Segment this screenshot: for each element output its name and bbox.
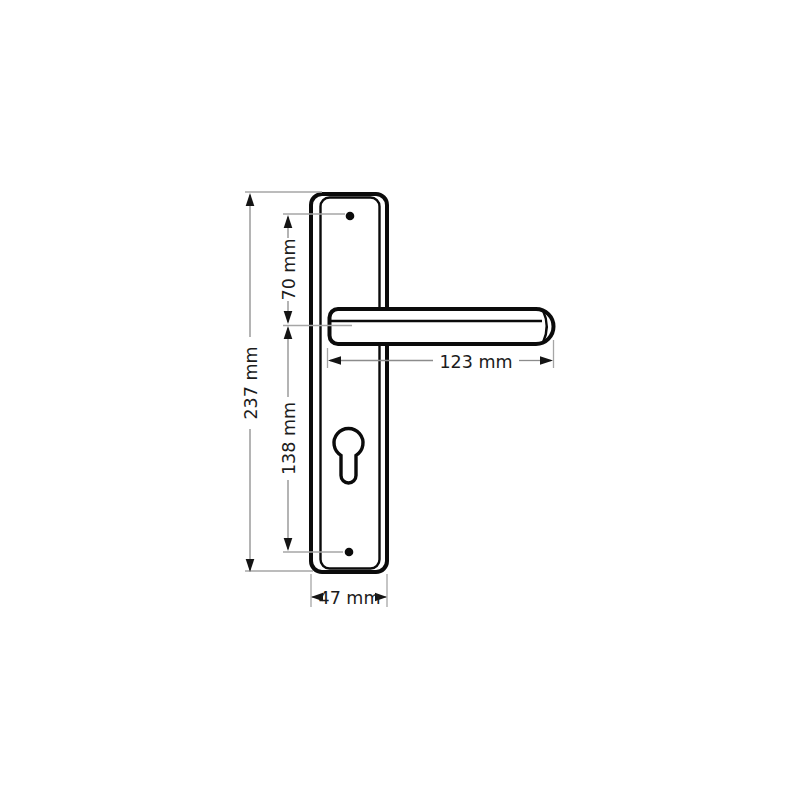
dimension-label-handle-length: 123 mm [439, 352, 512, 372]
arrow-down-icon [284, 311, 293, 324]
arrow-up-icon [284, 215, 293, 228]
dimension-plate-width: 47 mm [311, 574, 387, 608]
arrow-up-icon [246, 193, 255, 206]
dimension-label-plate-width: 47 mm [319, 588, 381, 608]
backplate [311, 194, 387, 572]
dimension-label-top-hole-to-handle: 70 mm [279, 239, 299, 301]
lever-handle [330, 309, 554, 344]
dimension-label-plate-height: 237 mm [241, 346, 261, 419]
lever-outline [330, 309, 554, 344]
arrow-down-icon [246, 559, 255, 572]
arrow-right-icon [540, 356, 553, 365]
door-handle-dimension-drawing: 237 mm 70 mm 138 mm [0, 0, 800, 800]
screw-hole-top [346, 212, 355, 221]
dimension-label-handle-to-bottom-hole: 138 mm [279, 402, 299, 475]
arrow-down-icon [284, 538, 293, 551]
arrow-up-icon [284, 326, 293, 339]
technical-drawing-page: 237 mm 70 mm 138 mm [0, 0, 800, 800]
screw-hole-bottom [345, 548, 354, 557]
backplate-outer-edge [311, 194, 387, 572]
